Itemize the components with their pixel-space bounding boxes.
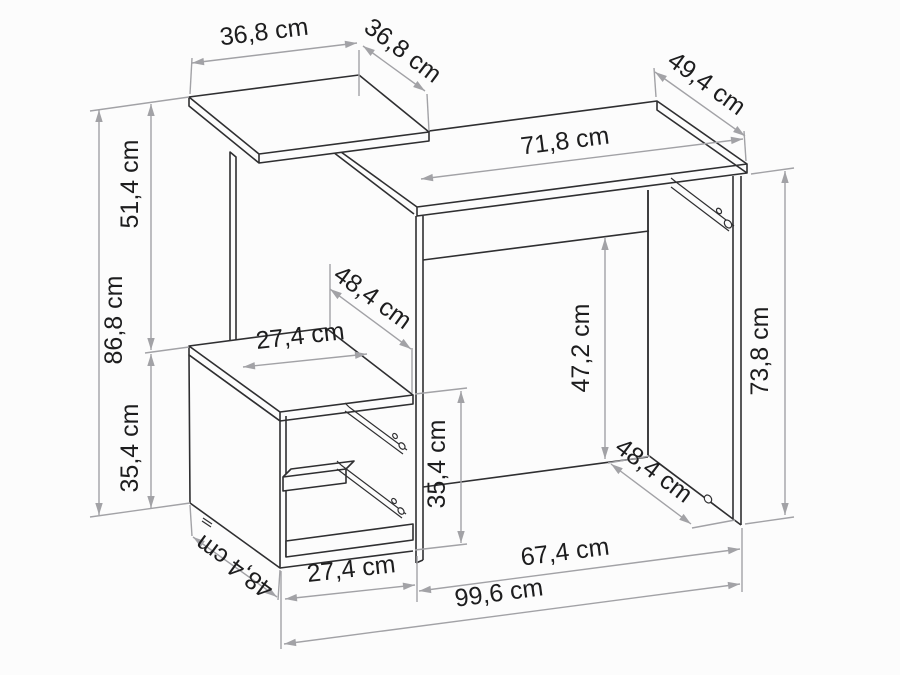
desk-dimension-diagram: 36,8 cm 36,8 cm 49,4 cm 71,8 cm 86,8 cm [0,0,900,675]
dim-label-total-height: 86,8 cm [100,276,128,365]
dim-label-desk-side-height: 73,8 cm [746,307,774,396]
diagram-canvas: 36,8 cm 36,8 cm 49,4 cm 71,8 cm 86,8 cm [0,0,900,675]
shelf-support-panel [230,152,236,341]
dim-label-under-desk-height: 47,2 cm [567,304,595,393]
dim-label-lower-section-height: 35,4 cm [116,404,144,493]
dim-label-upper-section-height: 51,4 cm [116,140,144,229]
dim-label-cabinet-front-height: 35,4 cm [423,420,451,509]
